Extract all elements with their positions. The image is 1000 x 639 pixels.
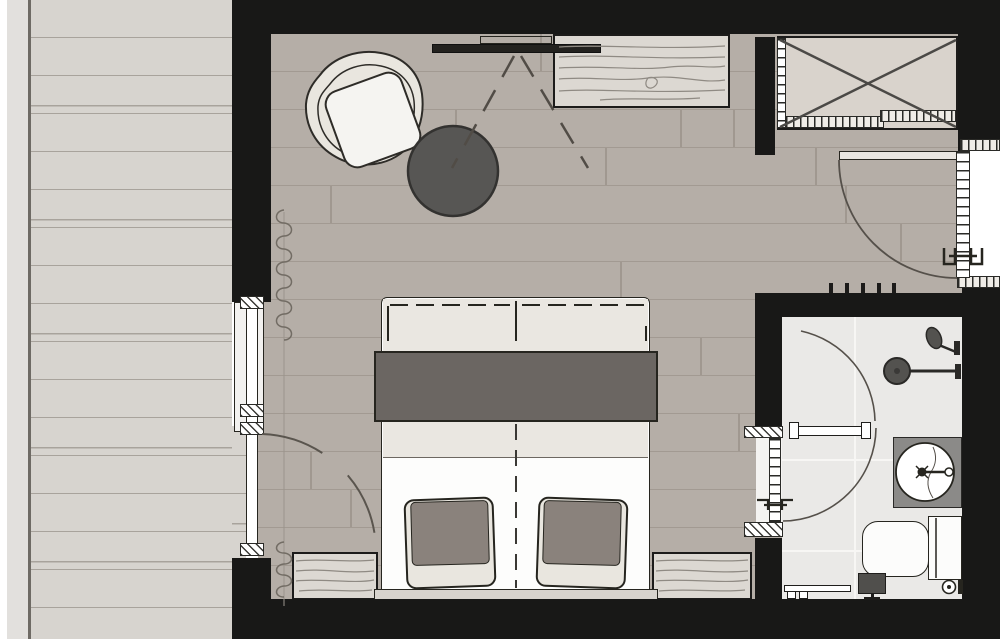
floor-seam	[738, 414, 740, 451]
floor-seam	[845, 186, 847, 223]
floor-seam	[733, 110, 735, 147]
exterior-edge-strip	[7, 0, 28, 639]
tv-mount	[480, 36, 552, 44]
bath-door-leaf	[769, 438, 781, 522]
wall-wardrobe-stub	[755, 37, 775, 155]
wall-bottom	[232, 599, 1000, 639]
pillow-left-cushion	[410, 500, 490, 566]
shower-partition	[796, 426, 868, 436]
bed-cream-band	[383, 422, 648, 458]
tv	[432, 44, 601, 53]
entry-doorway-exterior	[970, 151, 1000, 288]
floor-plan	[0, 0, 1000, 639]
toilet-bowl	[862, 521, 929, 577]
entry-door-leaf	[956, 151, 970, 278]
window-mullion	[240, 543, 264, 556]
entry-frame-top	[960, 139, 1000, 151]
floor-seam	[605, 148, 607, 185]
floor-seam	[330, 186, 332, 223]
radiator-tick	[861, 283, 865, 293]
entry-door-open-leaf	[839, 151, 957, 160]
floor-seam	[700, 338, 702, 375]
floor-seam	[352, 72, 354, 109]
floor-seam	[900, 224, 902, 261]
radiator-tick	[892, 283, 896, 293]
towel-rail-foot	[787, 591, 796, 599]
stool	[858, 573, 886, 594]
terrace-deck	[31, 0, 232, 639]
bed-blanket	[374, 351, 658, 422]
wardrobe-rail-left	[785, 116, 884, 128]
bath-door-frame-top	[744, 426, 783, 438]
window-mullion	[240, 404, 264, 417]
terrace-deck-window-patch	[232, 426, 246, 558]
floor-seam	[350, 490, 352, 527]
floor-seam	[815, 148, 817, 185]
towel-rail-foot	[799, 591, 808, 599]
floor-seam	[680, 110, 682, 147]
terrace-door-glazing	[246, 434, 258, 548]
wall-bathroom-top	[755, 293, 962, 317]
pillow-right-cushion	[542, 500, 622, 566]
wall-top	[232, 0, 1000, 34]
wall-right-upper	[958, 0, 1000, 152]
bath-door-frame-bottom	[744, 522, 783, 537]
wardrobe-rail-right	[880, 110, 956, 122]
window-mullion	[240, 422, 264, 435]
wall-bathroom-left	[755, 293, 782, 427]
nightstand-right	[652, 552, 752, 600]
floor-seam	[455, 110, 457, 147]
radiator-tick	[829, 283, 833, 293]
shower-partition-post	[789, 422, 799, 439]
nightstand-left	[292, 552, 378, 600]
shower-partition-post	[861, 422, 871, 439]
radiator-tick	[845, 283, 849, 293]
wall-left-upper	[232, 0, 271, 302]
wardrobe-side-panel	[777, 38, 786, 128]
stool-base	[864, 597, 880, 600]
toilet-cistern	[928, 516, 962, 580]
wall-right-lower	[962, 287, 1000, 599]
radiator-tick	[877, 283, 881, 293]
vanity-counter	[893, 437, 962, 508]
floor-seam	[310, 452, 312, 489]
floor-seam	[620, 262, 622, 299]
bed-duvet-band	[383, 299, 648, 351]
wall-bathroom-left-stub	[755, 538, 782, 603]
window-mullion	[240, 296, 264, 309]
